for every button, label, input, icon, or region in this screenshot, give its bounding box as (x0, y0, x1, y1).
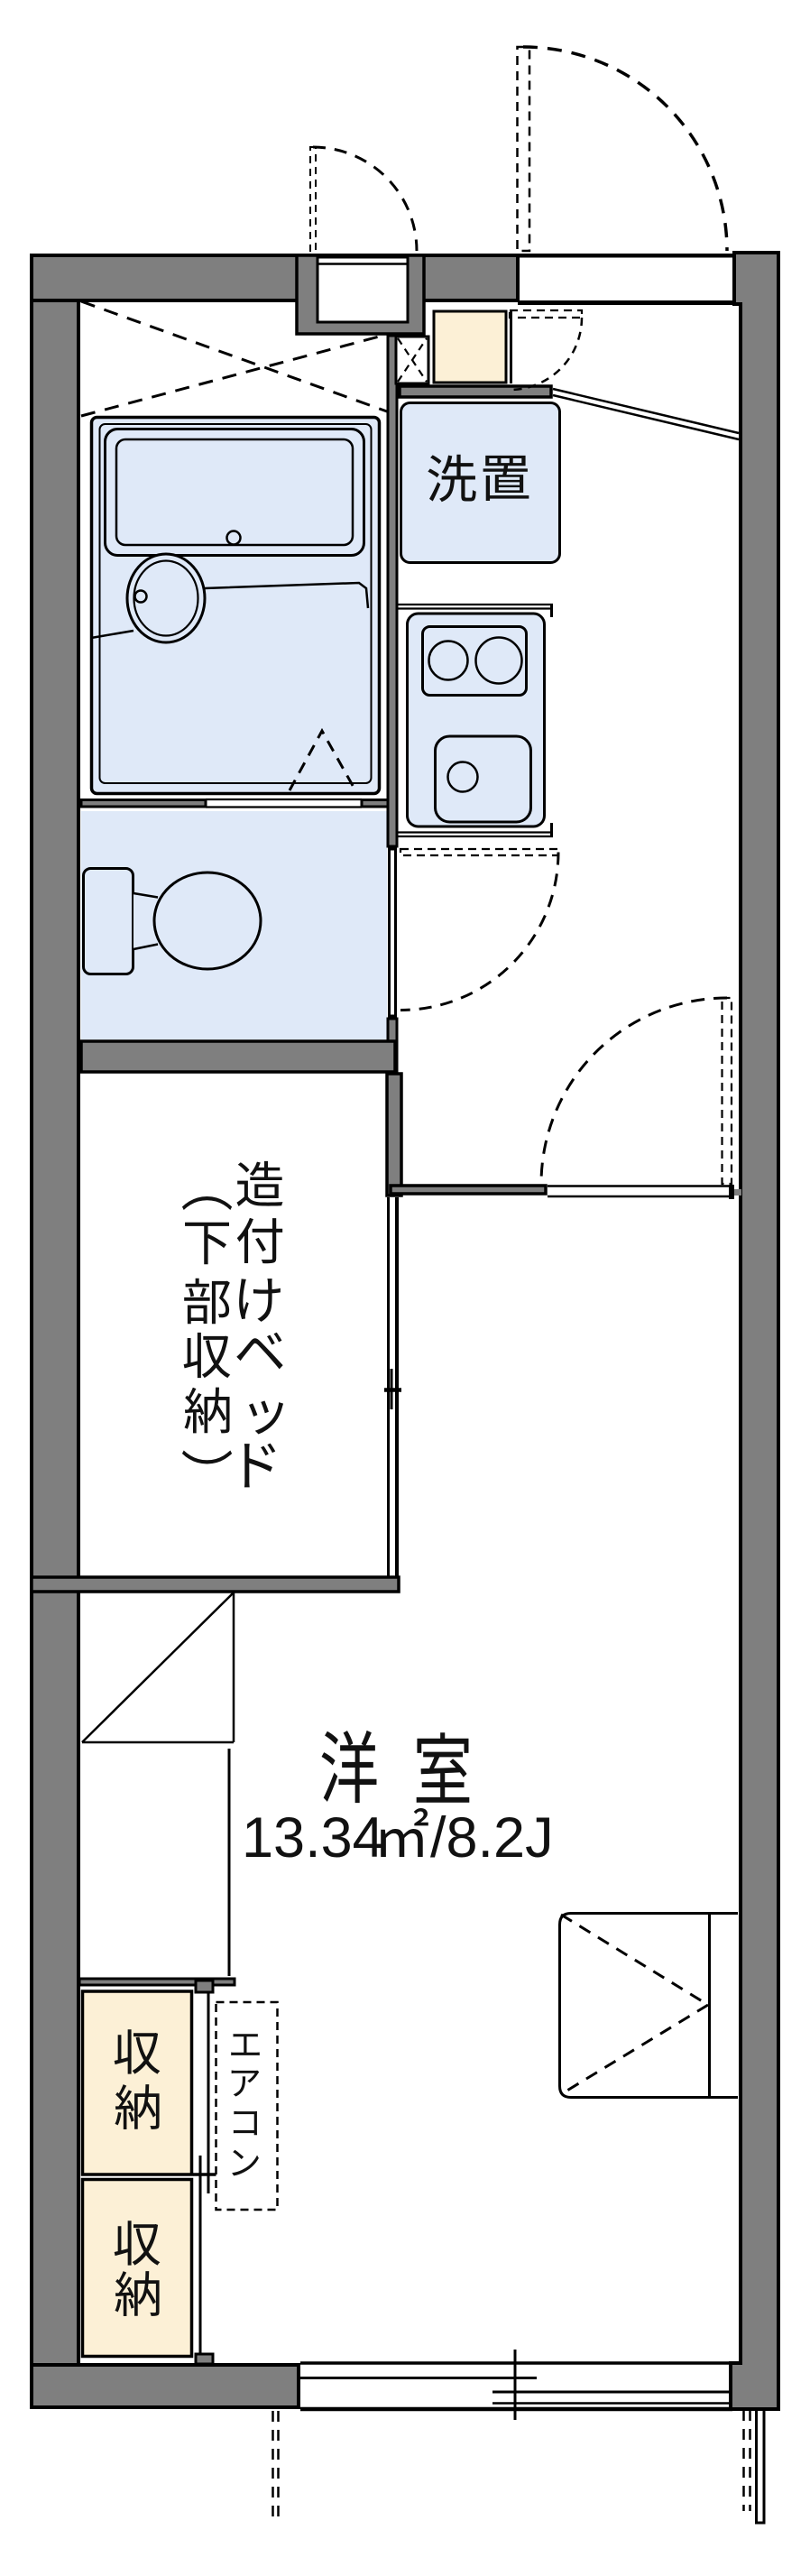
svg-text:13.34: 13.34 (242, 1806, 384, 1870)
svg-text:/8.2J: /8.2J (430, 1806, 554, 1870)
